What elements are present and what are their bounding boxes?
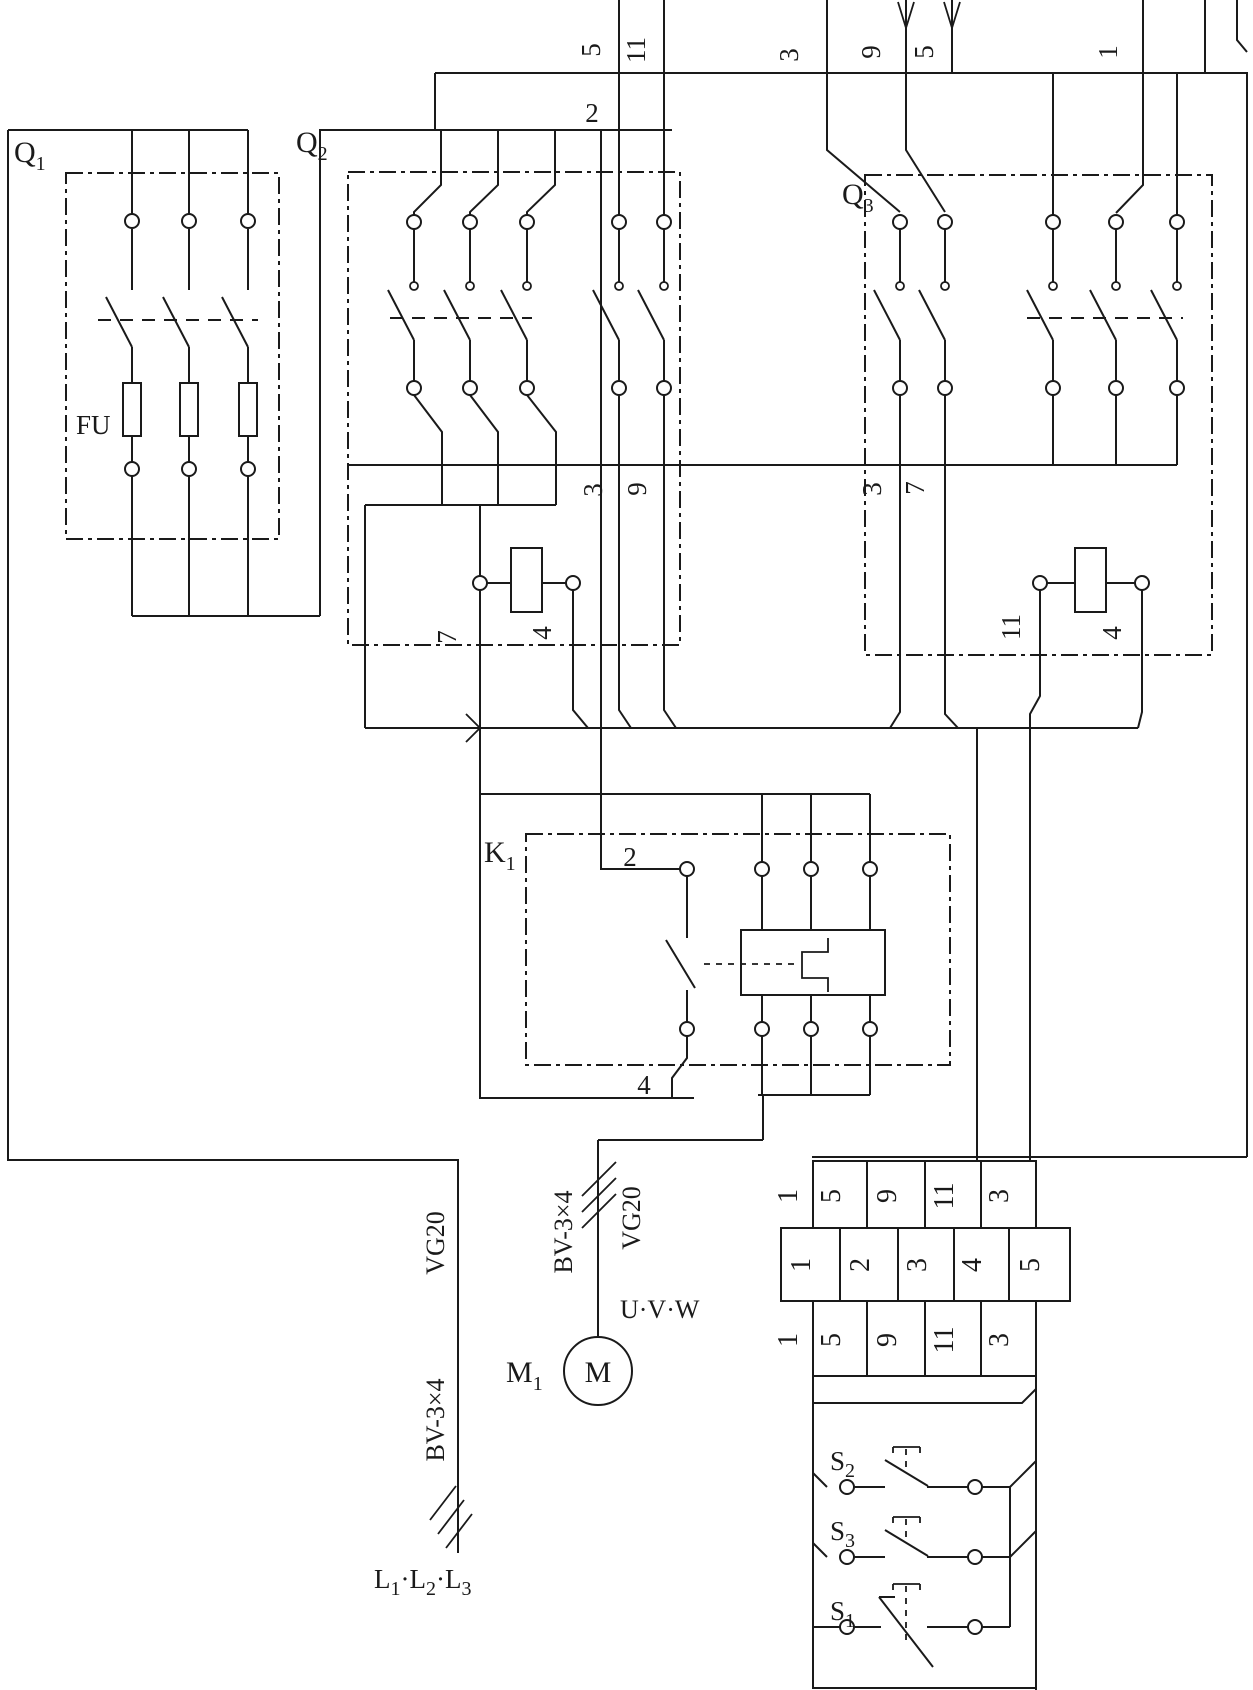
q2-coil-7: 7 — [432, 630, 462, 644]
wire-number-11: 11 — [621, 37, 651, 63]
strip-mid-cell: 3 — [902, 1258, 933, 1272]
strip-bottom-cell: 5 — [816, 1333, 847, 1347]
supply-lines-label: L1·L2·L3 — [374, 1564, 471, 1600]
q2-label: Q2 — [296, 126, 328, 165]
thermal-overload-icon — [741, 930, 885, 995]
q3-aux-7: 7 — [900, 481, 930, 495]
motor-letter: M — [585, 1356, 612, 1389]
q1-label: Q1 — [14, 136, 46, 175]
m1-label: M1 — [506, 1356, 543, 1395]
contact-terminals — [407, 215, 671, 395]
fuse-icon — [123, 383, 257, 436]
contact-terminals — [893, 215, 1184, 395]
strip-top-cell: 11 — [929, 1183, 960, 1210]
q2-aux-9: 9 — [622, 482, 652, 496]
coil-icon — [1033, 548, 1149, 612]
q3-contactor — [865, 175, 1212, 655]
k1-boundary — [526, 834, 950, 1065]
strip-top-cell: 3 — [984, 1189, 1015, 1203]
wire-number-1: 1 — [1093, 45, 1123, 59]
strip-top-prefix: 1 — [773, 1189, 804, 1203]
strip-bottom-prefix: 1 — [773, 1333, 804, 1347]
motor-terminals-label: U·V·W — [620, 1295, 700, 1324]
strip-bottom-cell: 9 — [872, 1333, 903, 1347]
fuse-label: FU — [76, 410, 111, 440]
k1-contactor — [526, 834, 950, 1065]
wire-number-5b: 5 — [909, 45, 939, 59]
strip-mid-cell: 1 — [786, 1258, 817, 1272]
wire-number-9: 9 — [856, 45, 886, 59]
strip-bottom-cell: 11 — [929, 1327, 960, 1354]
q3-aux-3: 3 — [857, 482, 887, 496]
incoming-conduit-label: VG20 — [421, 1211, 450, 1275]
strip-bottom-cell: 3 — [984, 1333, 1015, 1347]
q3-label: Q3 — [842, 178, 874, 217]
k1-label: K1 — [484, 836, 516, 875]
k1-wire-4: 4 — [637, 1070, 651, 1100]
motor-cable-label: BV-3×4 — [549, 1190, 578, 1273]
q2-aux-3: 3 — [578, 483, 608, 497]
wire-number-2: 2 — [585, 98, 599, 128]
k1-wire-2: 2 — [623, 842, 637, 872]
strip-mid-cell: 2 — [845, 1258, 876, 1272]
wire-number-3: 3 — [774, 48, 804, 62]
strip-mid-cell: 4 — [957, 1258, 988, 1272]
q3-coil-11: 11 — [996, 614, 1026, 640]
s3-label: S3 — [830, 1516, 855, 1552]
schematic-canvas: Q1 Q2 Q3 K1 M1 M FU S2 S3 S1 5 11 2 3 9 … — [0, 0, 1253, 1690]
wire-number-5: 5 — [576, 43, 606, 57]
q2-boundary — [348, 172, 680, 645]
strip-mid-cell: 5 — [1015, 1258, 1046, 1272]
schematic-page: Q1 Q2 Q3 K1 M1 M FU S2 S3 S1 5 11 2 3 9 … — [0, 0, 1253, 1690]
q3-coil-4: 4 — [1097, 626, 1127, 640]
s2-label: S2 — [830, 1446, 855, 1482]
incoming-cable-label: BV-3×4 — [421, 1378, 450, 1461]
cable-hatch-icon — [430, 1486, 472, 1548]
q2-coil-4: 4 — [527, 626, 557, 640]
q2-contactor — [348, 172, 680, 645]
strip-top-cell: 9 — [872, 1189, 903, 1203]
coil-icon — [473, 548, 580, 612]
motor-conduit-label: VG20 — [617, 1186, 646, 1250]
strip-top-cell: 5 — [816, 1189, 847, 1203]
wire-branch-icon — [898, 2, 960, 28]
